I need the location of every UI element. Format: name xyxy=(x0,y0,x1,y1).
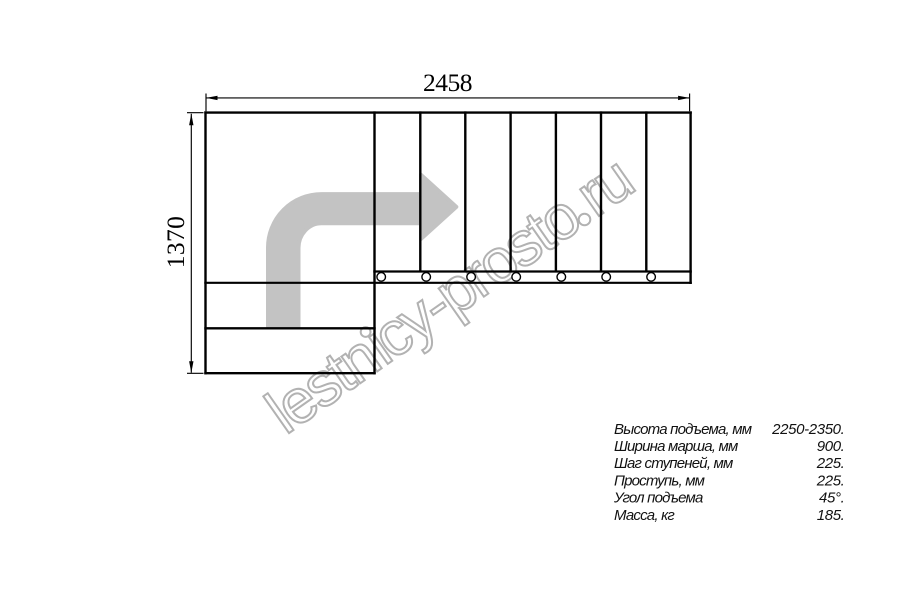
svg-text:Ширина марша, мм: Ширина марша, мм xyxy=(614,438,738,455)
svg-text:Угол подъема: Угол подъема xyxy=(613,490,703,507)
svg-text:Высота подъема, мм: Высота подъема, мм xyxy=(614,421,752,438)
svg-text:Шаг ступеней, мм: Шаг ступеней, мм xyxy=(614,455,733,472)
svg-text:2458: 2458 xyxy=(423,68,472,97)
svg-text:185.: 185. xyxy=(817,507,845,524)
svg-text:1370: 1370 xyxy=(161,216,190,269)
svg-text:225.: 225. xyxy=(816,455,845,472)
svg-text:Масса, кг: Масса, кг xyxy=(614,507,675,524)
svg-text:45°.: 45°. xyxy=(819,490,844,507)
svg-text:225.: 225. xyxy=(816,472,845,489)
svg-text:2250-2350.: 2250-2350. xyxy=(771,421,844,438)
svg-text:Проступь, мм: Проступь, мм xyxy=(614,472,705,489)
svg-text:900.: 900. xyxy=(817,438,845,455)
